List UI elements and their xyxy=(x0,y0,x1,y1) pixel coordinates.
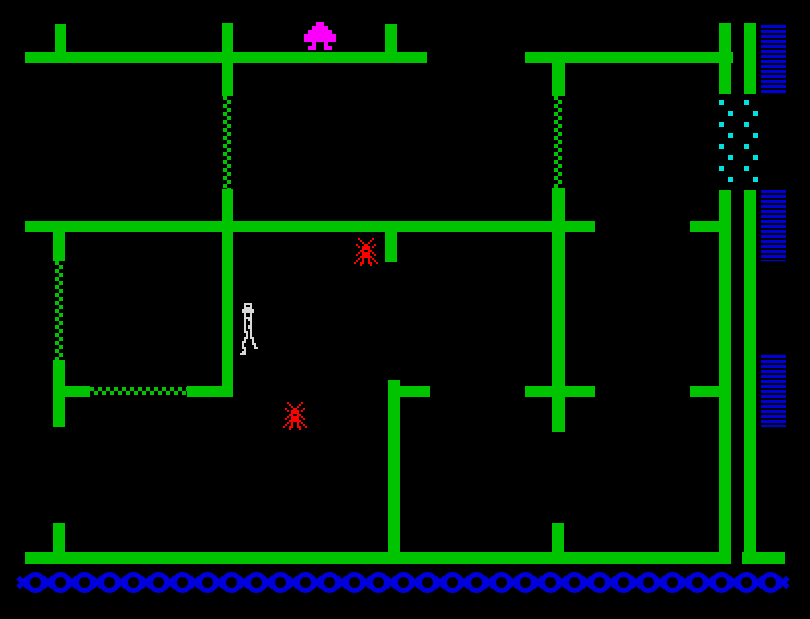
rope-dot xyxy=(55,357,59,361)
rope-dot xyxy=(150,391,154,395)
rope-dot xyxy=(227,132,231,136)
rope-dot xyxy=(558,148,562,152)
game-screen[interactable] xyxy=(0,0,810,619)
gate-dot xyxy=(728,177,733,182)
gate-dot xyxy=(753,177,758,182)
bar-mid-2 xyxy=(222,189,233,397)
gate-dot xyxy=(753,111,758,116)
rope-dot xyxy=(558,172,562,176)
gate-dot xyxy=(744,166,749,171)
rope-dot xyxy=(59,353,63,357)
rope-dot xyxy=(59,281,63,285)
rope-dot xyxy=(59,337,63,341)
player-sprite xyxy=(238,301,240,303)
rope-dot xyxy=(558,108,562,112)
rope-dot xyxy=(227,100,231,104)
arm-left-post xyxy=(65,386,90,397)
gate-dot xyxy=(744,122,749,127)
rope-dot xyxy=(558,164,562,168)
rope-dot xyxy=(59,305,63,309)
rope-dot xyxy=(227,140,231,144)
rope-dot xyxy=(59,265,63,269)
bar-lower-center xyxy=(388,380,400,552)
platform-top-right xyxy=(525,52,733,63)
rope-dot xyxy=(59,297,63,301)
gate-dot xyxy=(719,144,724,149)
rope-dot xyxy=(182,391,186,395)
platform-middle xyxy=(25,221,595,232)
rope-dot xyxy=(59,345,63,349)
bar-upper-5 xyxy=(552,63,565,96)
rope-dot xyxy=(110,391,114,395)
platform-bottom xyxy=(25,552,728,564)
rope-dot xyxy=(227,148,231,152)
rope-dot xyxy=(142,391,146,395)
rope-dot xyxy=(558,188,562,192)
rope-dot xyxy=(126,391,130,395)
spider-sprite xyxy=(281,400,283,402)
wall-right-outer-top xyxy=(744,23,756,94)
stub-bottom-left xyxy=(53,523,65,552)
rope-dot xyxy=(59,329,63,333)
rope-dot xyxy=(558,124,562,128)
rope-dot xyxy=(59,313,63,317)
rope-dot xyxy=(118,391,122,395)
wall-right-outer-main xyxy=(744,190,756,564)
rope-dot xyxy=(227,180,231,184)
bar-upper-2 xyxy=(222,63,233,96)
platform-top-left xyxy=(25,52,427,63)
rope-dot xyxy=(227,108,231,112)
rope-dot xyxy=(227,156,231,160)
rope-dot xyxy=(227,188,231,192)
gate-dot xyxy=(744,144,749,149)
bar-left-upper xyxy=(53,232,65,261)
bar-mid-5 xyxy=(552,188,565,221)
gate-dot xyxy=(719,122,724,127)
rope-dot xyxy=(227,172,231,176)
rope-dot xyxy=(59,273,63,277)
rope-dot xyxy=(59,289,63,293)
gate-dot xyxy=(728,133,733,138)
stub-bottom-center xyxy=(552,523,564,552)
rope-dot xyxy=(174,391,178,395)
rope-dot xyxy=(558,156,562,160)
rope-dot xyxy=(558,116,562,120)
rope-dot xyxy=(227,116,231,120)
gate-dot xyxy=(719,100,724,105)
post-top-1 xyxy=(55,24,66,52)
wall-right-inner-main xyxy=(719,190,731,564)
tree-sprite xyxy=(300,18,304,22)
ladder xyxy=(761,355,786,427)
rope-dot xyxy=(94,391,98,395)
bar-long-center xyxy=(552,232,565,432)
rope-dot xyxy=(166,391,170,395)
gate-dot xyxy=(753,155,758,160)
rope-dot xyxy=(558,100,562,104)
wall-right-inner-top xyxy=(719,23,731,94)
rope-dot xyxy=(134,391,138,395)
post-top-2 xyxy=(222,23,233,52)
ladder xyxy=(761,190,786,261)
post-top-3 xyxy=(385,24,397,52)
rope-dot xyxy=(227,124,231,128)
ladder xyxy=(761,25,786,93)
rope-dot xyxy=(158,391,162,395)
bar-left-lower xyxy=(53,360,65,427)
rope-dot xyxy=(227,164,231,168)
gate-dot xyxy=(728,111,733,116)
rope-dot xyxy=(102,391,106,395)
spider-sprite xyxy=(352,236,354,238)
rope-dot xyxy=(558,140,562,144)
rope-dot xyxy=(558,132,562,136)
gate-dot xyxy=(728,155,733,160)
stub-arm-center-left xyxy=(400,386,430,397)
rope-dot xyxy=(186,387,190,391)
gate-dot xyxy=(719,166,724,171)
rope-dot xyxy=(558,180,562,184)
gate-dot xyxy=(744,100,749,105)
stub-below-middle xyxy=(385,232,397,262)
rope-dot xyxy=(59,321,63,325)
gate-dot xyxy=(753,133,758,138)
